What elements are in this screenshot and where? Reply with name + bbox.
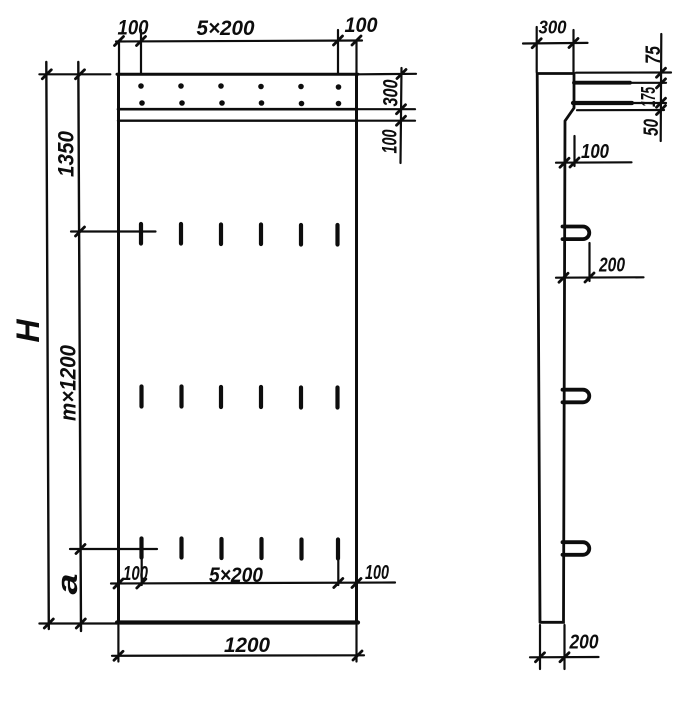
svg-text:200: 200 bbox=[598, 254, 625, 277]
svg-text:100: 100 bbox=[365, 561, 389, 584]
svg-text:5×200: 5×200 bbox=[197, 16, 255, 40]
svg-text:m×1200: m×1200 bbox=[56, 344, 81, 421]
svg-text:100: 100 bbox=[379, 129, 402, 153]
svg-text:75: 75 bbox=[642, 46, 665, 64]
svg-text:a: a bbox=[52, 574, 84, 595]
svg-text:175: 175 bbox=[638, 86, 660, 107]
svg-text:1200: 1200 bbox=[224, 633, 270, 657]
svg-text:300: 300 bbox=[539, 18, 567, 38]
svg-text:1350: 1350 bbox=[54, 131, 79, 177]
svg-text:H: H bbox=[10, 319, 46, 343]
svg-text:300: 300 bbox=[380, 79, 403, 106]
svg-text:200: 200 bbox=[569, 631, 599, 654]
svg-text:50: 50 bbox=[640, 119, 663, 136]
svg-text:5×200: 5×200 bbox=[209, 564, 263, 587]
svg-text:100: 100 bbox=[123, 563, 148, 585]
svg-text:100: 100 bbox=[581, 140, 609, 163]
svg-text:100: 100 bbox=[345, 13, 378, 37]
svg-text:100: 100 bbox=[118, 16, 149, 40]
